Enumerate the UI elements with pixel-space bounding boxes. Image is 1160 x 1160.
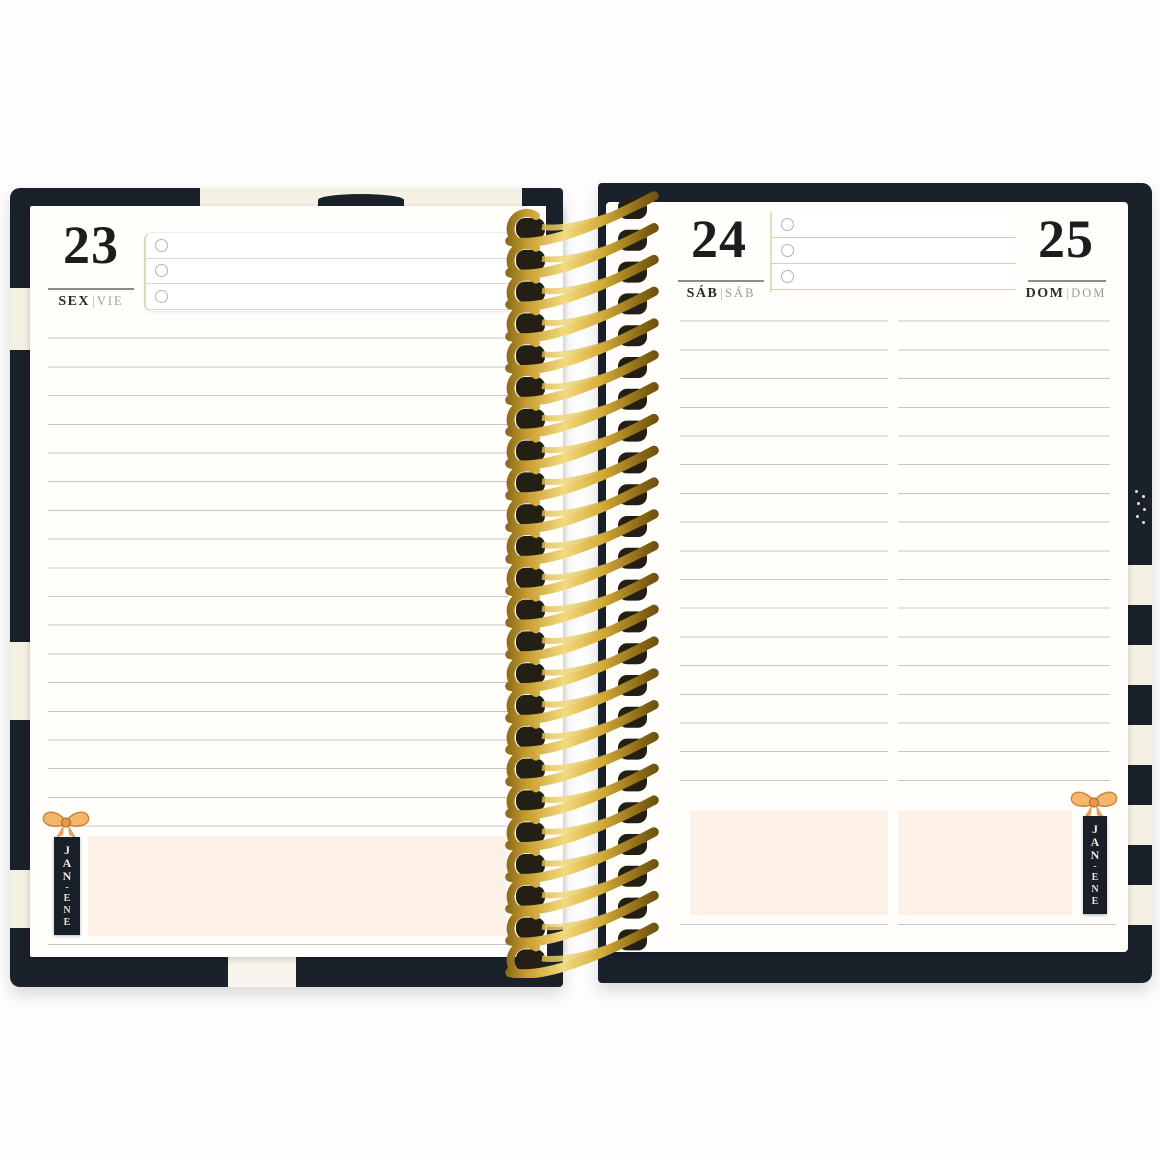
- checklist-row: [772, 264, 1016, 290]
- checklist-row: [772, 238, 1016, 264]
- day-number: 24: [676, 210, 762, 268]
- day-number: 25: [1024, 210, 1108, 268]
- bow-icon: [1068, 786, 1120, 820]
- cover-stripe-gap: [1128, 725, 1152, 765]
- bullet-circle-icon: [781, 270, 794, 283]
- bullet-circle-icon: [155, 264, 168, 277]
- month-tab-letter: J: [64, 845, 70, 856]
- cover-stripe-bump: [318, 194, 404, 206]
- highlight-box: [898, 811, 1072, 915]
- final-rule: [48, 944, 508, 945]
- bullet-circle-icon: [781, 244, 794, 257]
- month-tab-letter: N: [1091, 850, 1100, 861]
- cover-stripe-gap: [1128, 885, 1152, 925]
- cover-stripe-gap: [10, 288, 32, 350]
- day-number-rule: [48, 288, 134, 290]
- month-tab-letter: E: [64, 894, 71, 904]
- month-tab-letter: E: [1092, 873, 1099, 883]
- month-tab-letter: N: [63, 871, 72, 882]
- spiral-binding-icon: [496, 188, 666, 978]
- day-number-rule: [1028, 280, 1106, 282]
- right-page: 24 SÁB|SÁB 25 DOM|DOM J A N - E: [606, 202, 1128, 952]
- month-tab: J A N - E N E: [1083, 816, 1107, 914]
- month-tab-letter: N: [63, 906, 70, 916]
- month-tab-letter: N: [1091, 885, 1098, 895]
- month-tab-letter: J: [1092, 824, 1098, 835]
- month-tab-letter: A: [1091, 837, 1100, 848]
- ruled-lines: [898, 293, 1110, 805]
- final-rule: [680, 924, 888, 925]
- final-rule: [898, 924, 1116, 925]
- checklist-panel: [144, 232, 513, 312]
- day-label: SEX|VIE: [32, 294, 150, 310]
- left-page: 23 SEX|VIE J A N - E N E: [30, 206, 563, 957]
- month-tab-dash: -: [1093, 863, 1096, 871]
- checklist-row: [772, 212, 1016, 238]
- checklist-row: [146, 259, 512, 285]
- month-tab-letter: E: [1092, 897, 1099, 907]
- cover-stripe-gap: [1128, 565, 1152, 605]
- day-number-rule: [678, 280, 764, 282]
- bullet-circle-icon: [155, 290, 168, 303]
- month-tab-letter: A: [63, 858, 72, 869]
- highlight-box: [88, 836, 506, 936]
- month-tab-dash: -: [65, 884, 68, 892]
- cover-stripe-gap: [1128, 645, 1152, 685]
- bullet-circle-icon: [781, 218, 794, 231]
- day-label-pt: SEX: [58, 294, 90, 309]
- bow-icon: [40, 806, 92, 840]
- day-label-es: VIE: [97, 294, 124, 308]
- cover-stripe-gap: [1128, 805, 1152, 845]
- day-number: 23: [46, 216, 136, 274]
- checklist-row: [146, 233, 512, 259]
- cover-stripe-gap: [10, 870, 32, 928]
- day-label-separator: |: [92, 294, 95, 309]
- ruled-lines: [48, 310, 508, 828]
- ruled-lines: [680, 293, 888, 805]
- cover-stripe-gap: [10, 642, 32, 720]
- planner-photo: 23 SEX|VIE J A N - E N E: [0, 0, 1160, 1160]
- highlight-box: [690, 811, 888, 915]
- cover-stripe-gap: [228, 955, 296, 987]
- checklist-row: [146, 284, 512, 310]
- month-tab-letter: E: [64, 918, 71, 928]
- bullet-circle-icon: [155, 239, 168, 252]
- checklist-panel: [770, 212, 1016, 292]
- month-tab: J A N - E N E: [54, 837, 80, 935]
- cover-edge-dots: [1132, 488, 1148, 526]
